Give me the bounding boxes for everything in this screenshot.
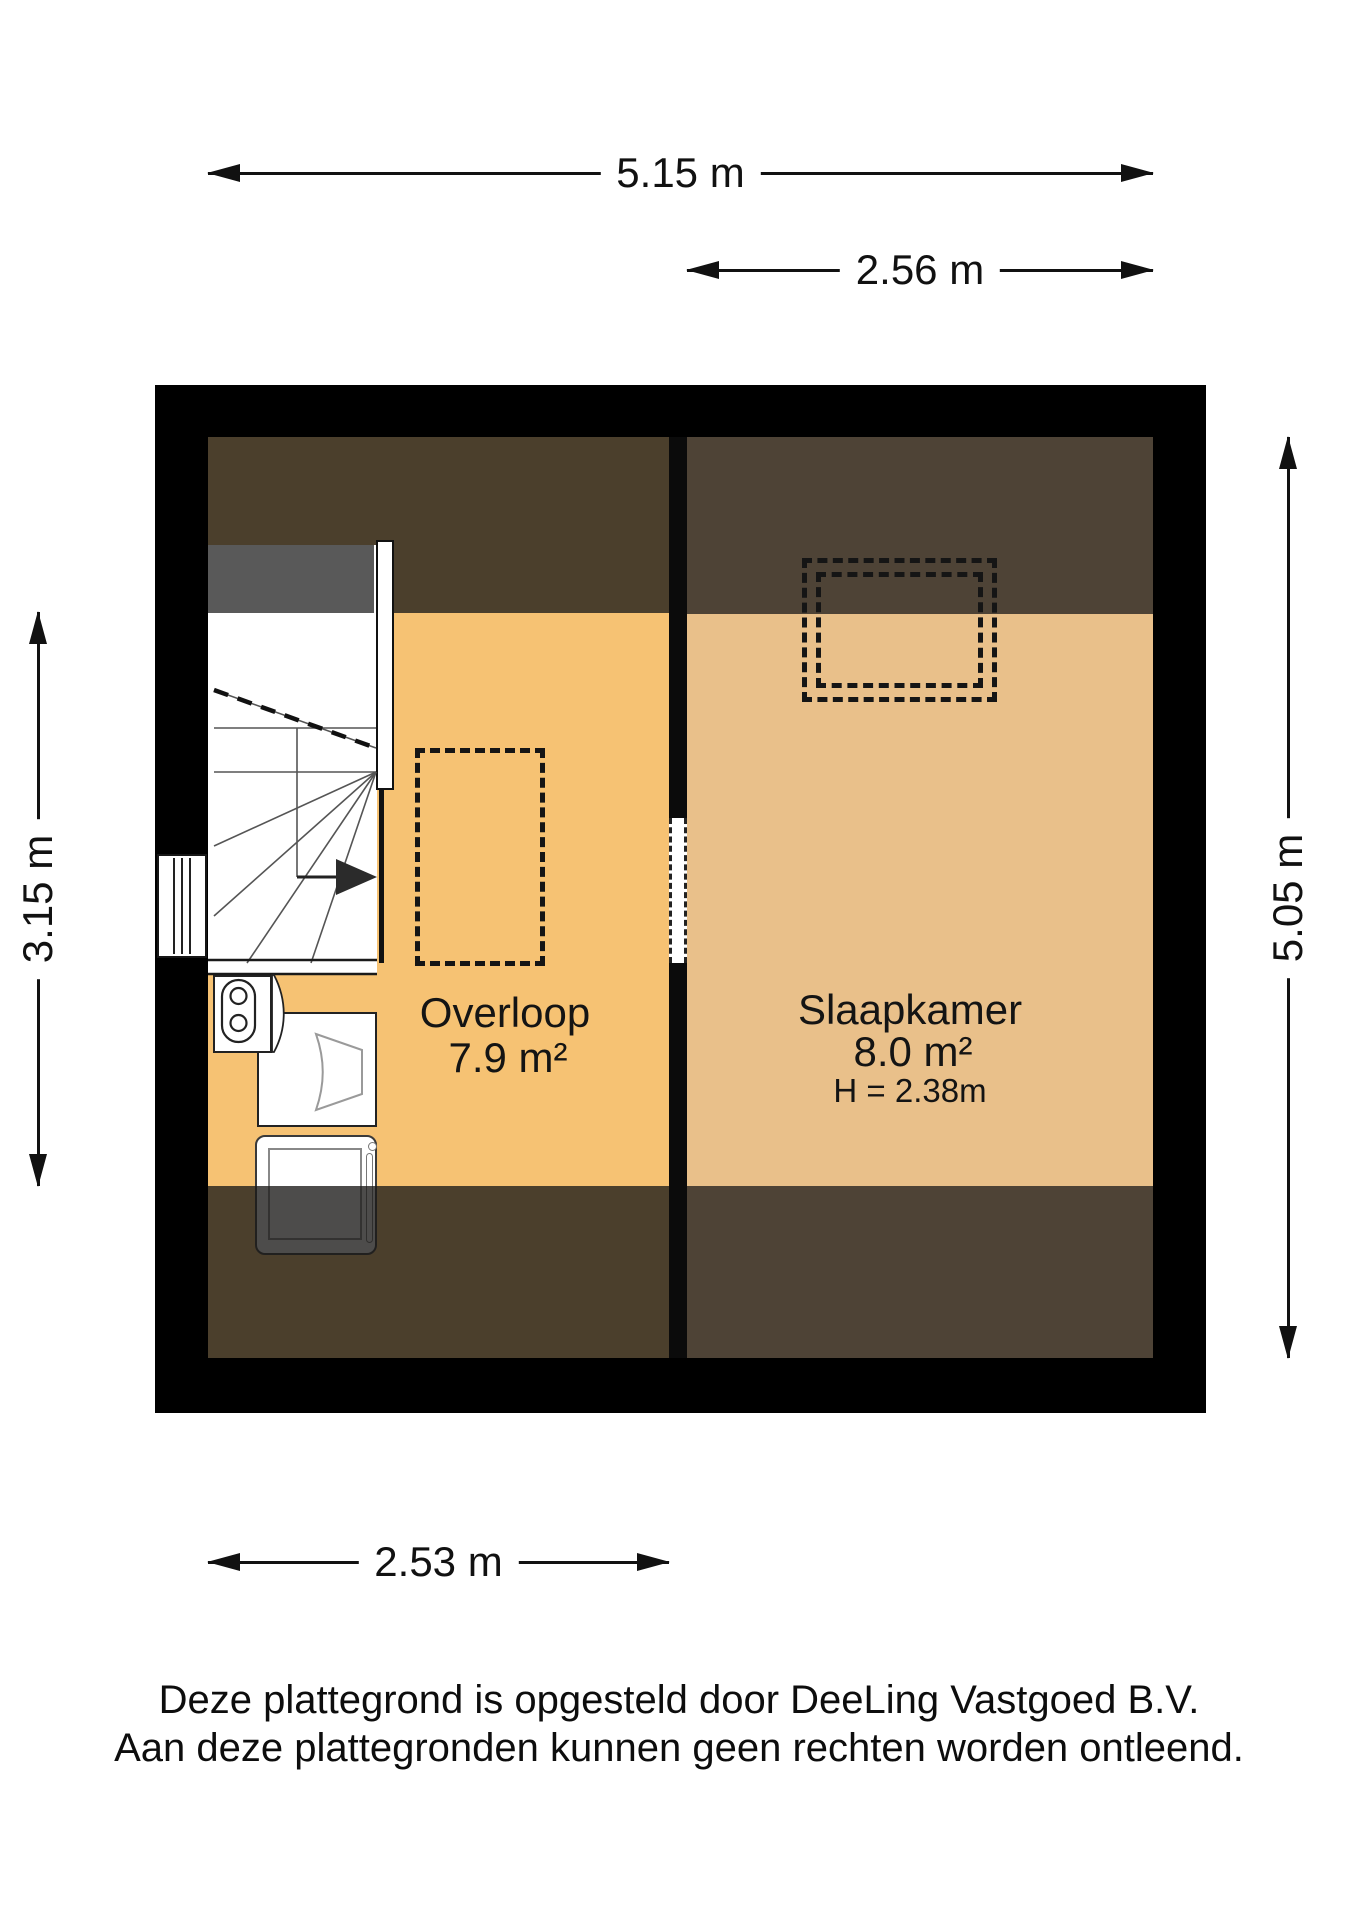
room-area-slaapkamer: 8.0 m² [853, 1028, 972, 1076]
floorplan-page: 5.15 m 2.56 m 3.15 m 5.05 m 2.53 m [0, 0, 1358, 1920]
room-ceiling-height-slaapkamer: H = 2.38m [833, 1072, 986, 1110]
headroom-dashed-outline-overloop [415, 748, 545, 966]
stair-direction-arrow-icon [297, 859, 377, 895]
staircase [214, 690, 376, 963]
room-name-overloop: Overloop [420, 989, 590, 1037]
room-area-overloop: 7.9 m² [448, 1034, 567, 1082]
footer-disclaimer: Deze plattegrond is opgesteld door DeeLi… [114, 1676, 1244, 1772]
footer-line-2: Aan deze plattegronden kunnen geen recht… [114, 1724, 1244, 1772]
boiler-symbol-icon [222, 980, 255, 1042]
stair-bottom-edge [208, 960, 377, 974]
door-leaf [272, 975, 284, 1052]
room-name-slaapkamer: Slaapkamer [798, 986, 1022, 1034]
sloped-ceiling-overloop-bottom [208, 1186, 669, 1358]
roof-window-dashed-inner [816, 572, 983, 688]
door-opening [669, 818, 687, 963]
footer-line-1: Deze plattegrond is opgesteld door DeeLi… [114, 1676, 1244, 1724]
window-mullions [174, 858, 190, 954]
sink-basin-outline [316, 1034, 362, 1110]
